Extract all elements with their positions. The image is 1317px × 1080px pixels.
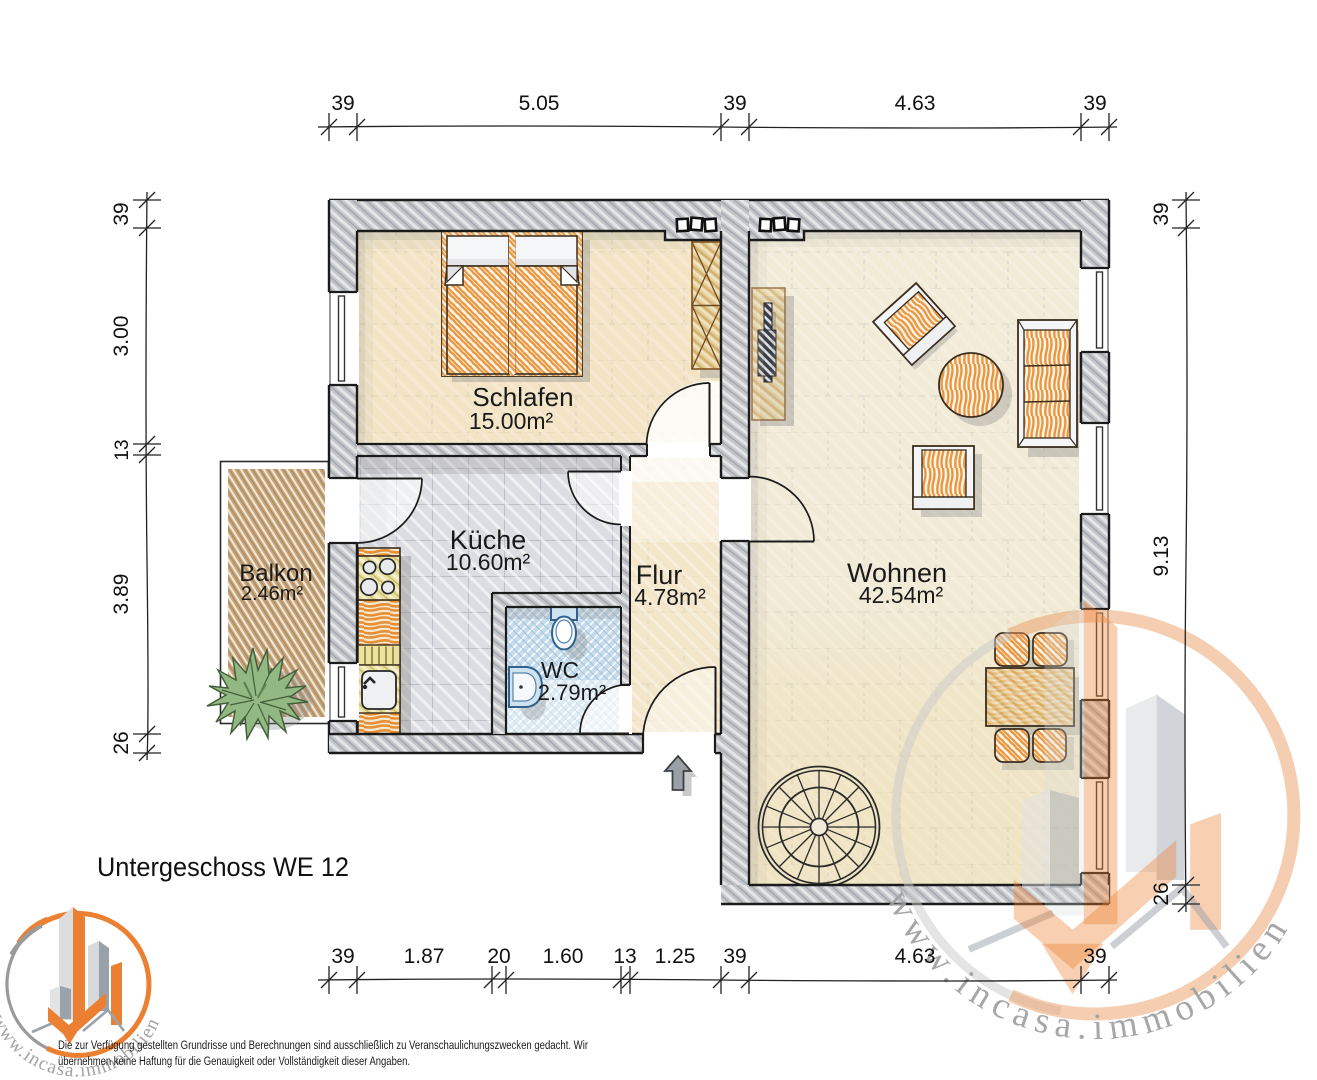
- svg-text:4.63: 4.63: [895, 92, 936, 115]
- svg-text:Die zur Verfügung gestellten G: Die zur Verfügung gestellten Grundrisse …: [58, 1038, 588, 1052]
- svg-text:2.46m²: 2.46m²: [241, 583, 304, 605]
- svg-text:39: 39: [331, 92, 354, 115]
- svg-text:3.00: 3.00: [110, 316, 133, 357]
- svg-text:15.00m²: 15.00m²: [469, 408, 554, 434]
- svg-text:26: 26: [110, 731, 133, 754]
- svg-text:4.63: 4.63: [895, 945, 936, 968]
- svg-text:39: 39: [723, 945, 746, 968]
- svg-text:39: 39: [1083, 945, 1106, 968]
- svg-text:1.87: 1.87: [404, 945, 445, 968]
- svg-text:übernehmen keine Haftung für d: übernehmen keine Haftung für die Genauig…: [58, 1054, 410, 1068]
- svg-text:3.89: 3.89: [110, 574, 133, 615]
- svg-text:1.60: 1.60: [543, 945, 584, 968]
- svg-text:10.60m²: 10.60m²: [446, 549, 531, 575]
- svg-text:Untergeschoss WE 12: Untergeschoss WE 12: [97, 852, 349, 882]
- svg-text:39: 39: [723, 92, 746, 115]
- svg-text:1.25: 1.25: [655, 945, 696, 968]
- svg-text:39: 39: [110, 202, 133, 225]
- svg-text:39: 39: [331, 945, 354, 968]
- svg-text:26: 26: [1150, 882, 1173, 905]
- svg-text:39: 39: [1083, 92, 1106, 115]
- svg-text:4.78m²: 4.78m²: [634, 584, 706, 610]
- svg-text:39: 39: [1150, 202, 1173, 225]
- svg-text:13: 13: [613, 945, 636, 968]
- svg-text:9.13: 9.13: [1150, 536, 1173, 577]
- svg-text:13: 13: [112, 439, 133, 460]
- svg-text:20: 20: [487, 945, 510, 968]
- svg-text:2.79m²: 2.79m²: [538, 680, 606, 705]
- svg-text:42.54m²: 42.54m²: [859, 582, 944, 608]
- svg-text:5.05: 5.05: [519, 92, 560, 115]
